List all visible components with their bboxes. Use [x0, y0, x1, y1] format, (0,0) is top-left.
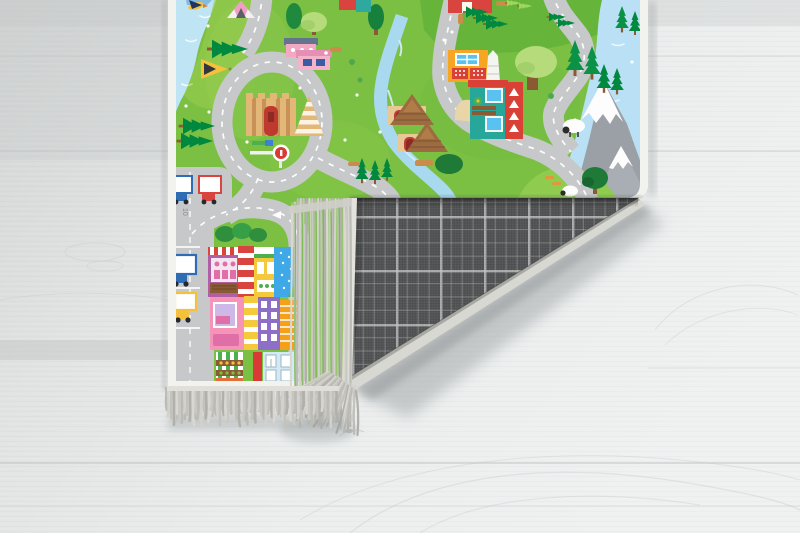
svg-text:10: 10: [181, 208, 188, 216]
